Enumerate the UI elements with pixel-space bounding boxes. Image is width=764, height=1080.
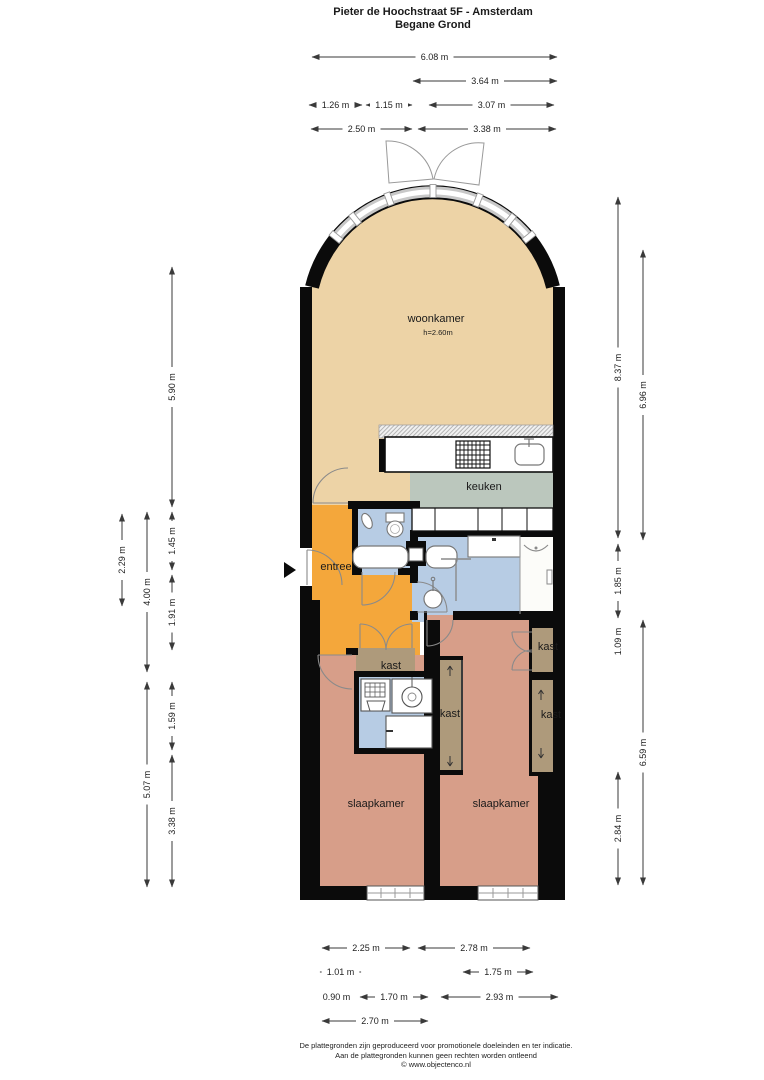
room-label-slaapkamer-left: slaapkamer (348, 798, 405, 810)
washing-machine-icon (392, 677, 432, 713)
dim-label: 1.01 m (327, 967, 355, 977)
dim-label: 3.07 m (478, 100, 506, 110)
dimension-2-84-m: 2.84 m (613, 772, 624, 885)
shower-tray-icon (386, 716, 432, 748)
dim-label: 3.64 m (471, 76, 499, 86)
dim-label: 4.00 m (142, 578, 152, 606)
dimension-6-96-m: 6.96 m (638, 250, 649, 540)
dimension-1-26-m: 1.26 m (309, 100, 362, 111)
dim-label: 6.59 m (638, 739, 648, 767)
toilet-icon (386, 513, 404, 537)
dim-label: 2.50 m (348, 124, 376, 134)
dim-label: 1.59 m (167, 702, 177, 730)
dim-label: 2.84 m (613, 815, 623, 843)
dimension-1-85-m: 1.85 m (613, 544, 624, 618)
dim-label: 5.07 m (142, 771, 152, 799)
dim-label: 2.78 m (460, 943, 488, 953)
footer-copyright: © www.objectenco.nl (299, 1060, 572, 1070)
dimension-1-45-m: 1.45 m (167, 512, 178, 570)
dimension-8-37-m: 8.37 m (613, 197, 624, 538)
dim-label: 5.90 m (167, 373, 177, 401)
dimension-3-38-m: 3.38 m (418, 124, 556, 135)
dimension-2-78-m: 2.78 m (418, 943, 530, 954)
dim-label: 6.96 m (638, 381, 648, 409)
dim-label: 3.38 m (167, 807, 177, 835)
gas-hob-icon (456, 441, 490, 468)
dim-label: 1.85 m (613, 567, 623, 595)
bathtub-icon (426, 546, 457, 568)
dim-label: 2.25 m (352, 943, 380, 953)
dimension-1-70-m: 1.70 m (360, 992, 428, 1003)
dimension-1-15-m: 1.15 m (366, 100, 412, 111)
dimension-4-00-m: 4.00 m (142, 512, 153, 672)
dimension-6-08-m: 6.08 m (312, 52, 557, 63)
dim-label: 6.08 m (421, 52, 449, 62)
room-label-kast-right: kast (541, 709, 561, 721)
bathtub-icon (353, 546, 408, 568)
dimension-0-90-m: 0.90 m (318, 992, 356, 1003)
dimension-2-93-m: 2.93 m (441, 992, 558, 1003)
dim-label: 2.93 m (486, 992, 514, 1002)
dimension-2-50-m: 2.50 m (311, 124, 412, 135)
kitchen-cabinets-icon (412, 508, 553, 531)
dimension-1-91-m: 1.91 m (167, 575, 178, 650)
floorplan-page: Pieter de Hoochstraat 5F - Amsterdam Beg… (0, 0, 764, 1080)
dim-label: 1.91 m (167, 599, 177, 627)
dim-label: 1.15 m (375, 100, 403, 110)
room-label-slaapkamer-right: slaapkamer (473, 798, 530, 810)
dimension-5-90-m: 5.90 m (167, 267, 178, 507)
dim-label: 1.75 m (484, 967, 512, 977)
window-icon (478, 886, 538, 900)
footer-disclaimer: De plattegronden zijn geproduceerd voor … (299, 1041, 572, 1070)
dimension-1-59-m: 1.59 m (167, 682, 178, 750)
dim-label: 3.38 m (473, 124, 501, 134)
room-label-kast-middle: kast (440, 708, 460, 720)
dim-label: 2.29 m (117, 546, 127, 574)
dim-label: 0.90 m (323, 992, 351, 1002)
footer-line-1: De plattegronden zijn geproduceerd voor … (299, 1041, 572, 1051)
window-icon (367, 886, 424, 900)
balcony-door-icon (386, 141, 484, 185)
dim-label: 2.70 m (361, 1016, 389, 1026)
dimension-2-25-m: 2.25 m (322, 943, 410, 954)
dim-label: 1.26 m (322, 100, 350, 110)
dimension-6-59-m: 6.59 m (638, 620, 649, 885)
dimension-2-29-m: 2.29 m (117, 514, 128, 606)
utility-cabinet-icon (361, 679, 390, 711)
dimension-3-64-m: 3.64 m (413, 76, 557, 87)
footer-line-2: Aan de plattegronden kunnen geen rechten… (299, 1051, 572, 1061)
room-sublabel-woonkamer: h=2.60m (423, 328, 452, 337)
dimension-1-09-m: 1.09 m (613, 622, 624, 662)
dimension-5-07-m: 5.07 m (142, 682, 153, 887)
room-label-kast-entree: kast (381, 660, 401, 672)
dim-label: 1.09 m (613, 628, 623, 656)
dimension-3-07-m: 3.07 m (429, 100, 554, 111)
dimension-1-01-m: 1.01 m (320, 967, 361, 978)
dim-label: 8.37 m (613, 354, 623, 382)
dimension-1-75-m: 1.75 m (463, 967, 533, 978)
kast-right-floor (531, 680, 553, 772)
floorplan-drawing: woonkamerh=2.60mkeukenentreekastkastkast… (0, 0, 764, 1080)
dimension-3-38-m: 3.38 m (167, 755, 178, 887)
vanity-icon (468, 536, 520, 557)
entrance-arrow-icon (284, 562, 296, 578)
room-label-keuken: keuken (466, 481, 501, 493)
dimension-2-70-m: 2.70 m (322, 1016, 428, 1027)
dim-label: 1.45 m (167, 527, 177, 555)
room-label-kast-right-top: kast (538, 641, 558, 653)
dim-label: 1.70 m (380, 992, 408, 1002)
room-label-entree: entree (320, 561, 351, 573)
room-label-woonkamer: woonkamer (407, 313, 465, 325)
